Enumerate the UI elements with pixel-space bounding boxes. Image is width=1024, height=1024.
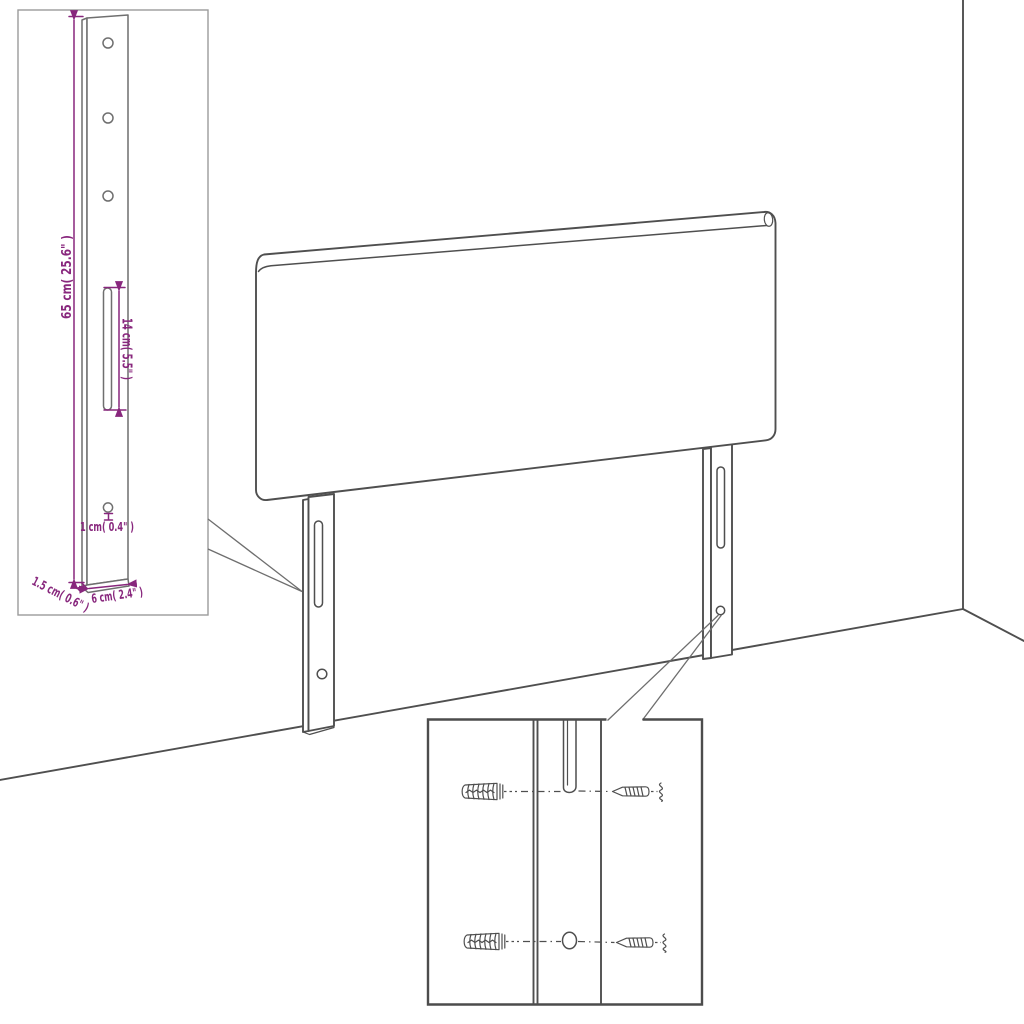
detail-inset-mounting: [427, 615, 722, 1006]
diagram-canvas: 65 cm( 25.6" ) 14 cm( 5.5" ) 1 cm( 0.4" …: [0, 0, 1024, 1024]
dim-label-height: 65 cm( 25.6" ): [59, 235, 75, 319]
right-leg: [703, 444, 732, 659]
mounting-callout-line-2: [643, 615, 722, 720]
floor-line-right: [963, 609, 1024, 641]
headboard-outline: [256, 212, 776, 500]
dim-label-slot: 14 cm( 5.5" ): [119, 318, 134, 380]
mounting-callout-line-1: [608, 615, 719, 721]
right-leg-front-face: [711, 444, 732, 658]
bracket-front-face: [87, 15, 128, 585]
right-leg-side-face: [703, 448, 711, 659]
bracket-drawing: [82, 15, 129, 593]
inset-mounting-fill: [427, 719, 703, 1006]
dim-label-hole: 1 cm( 0.4" ): [80, 519, 134, 534]
left-leg: [303, 494, 334, 735]
left-leg-front-face: [309, 494, 335, 731]
assembly-diagram: 65 cm( 25.6" ) 14 cm( 5.5" ) 1 cm( 0.4" …: [0, 0, 1024, 1024]
callout-lines-bracket: [208, 519, 302, 592]
headboard-panel: [256, 212, 776, 500]
